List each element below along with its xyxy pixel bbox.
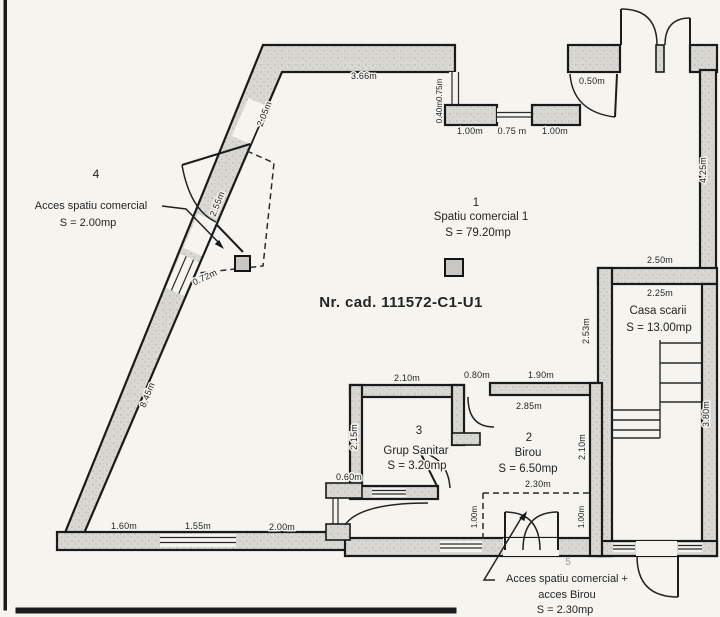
dim-stair-left: 2.53m [581, 318, 591, 344]
room3-name: Grup Sanitar [383, 445, 448, 457]
dim-right-wall: 4.25m [698, 157, 708, 183]
gs-wall-jog [452, 433, 480, 445]
dim-top-wall: 3.66m [351, 71, 377, 81]
access4-area: S = 2.00mp [60, 217, 117, 229]
recess-door-leaf [615, 74, 617, 117]
dim-birou-right: 2.10m [577, 434, 587, 460]
stairwell-door-arc [637, 556, 678, 597]
stairwell-door-opening [636, 541, 677, 556]
entrance-left-door-arc [621, 9, 657, 45]
birou-entry-door-arc [468, 397, 494, 427]
stair-treads [612, 340, 702, 438]
window-opening-lobby [440, 541, 482, 552]
stairwell-window-slot [613, 543, 635, 552]
cadastral-number: Nr. cad. 111572-C1-U1 [319, 294, 483, 311]
dim-recess-jog: 0.40m0.75m [435, 78, 444, 123]
gs-window-slot [372, 488, 406, 497]
wall-entry-pier [568, 45, 620, 72]
room1-number: 1 [473, 197, 479, 209]
window-opening-bottom [160, 534, 236, 547]
page-border-left [4, 0, 7, 610]
lobby-wall-stub [326, 524, 350, 540]
birou-wall-top [490, 383, 600, 395]
stairwell-window-slot [678, 543, 702, 552]
dim-gs-left: 2.15m [349, 424, 359, 450]
interior-partitions [326, 383, 602, 556]
wall-top-right [690, 45, 717, 72]
dim-bottom-seg2: 1.55m [185, 521, 211, 531]
access4-text: Acces spatiu comercial [35, 200, 148, 212]
stairwell [598, 268, 717, 597]
dim-recess-window: 0.75 m [498, 126, 527, 136]
access4-arrowhead [215, 240, 224, 249]
dim-birou-inner: 2.85m [516, 401, 542, 411]
stairwell-wall-top [598, 268, 717, 284]
dim-bottom-seg3: 2.00m [269, 522, 295, 532]
stairwell-area: S = 13.00mp [626, 322, 692, 334]
dim-entry-pier: 0.50m [579, 76, 605, 86]
access5-text-line2: acces Birou [538, 589, 595, 601]
recess-window-gap [497, 108, 532, 122]
dim-birou-door: 0.80m [464, 370, 490, 380]
stairwell-name: Casa scarii [630, 305, 687, 317]
dim-access5-left: 1.00m [470, 506, 479, 529]
lobby-door-arc [345, 503, 428, 525]
gs-wall-top [350, 385, 464, 397]
access5-text-line1: Acces spatiu comercial + [506, 573, 628, 585]
dim-recess-pier2: 1.00m [542, 126, 568, 136]
slant-door-b-leaf [216, 224, 243, 252]
dim-bottom-seg1: 1.60m [111, 521, 137, 531]
room3-area: S = 3.20mp [387, 460, 446, 472]
floor-plan-scan: 3.66m 2.05m 0.40m0.75m 1.00m 0.75 m 1.00… [0, 0, 720, 617]
room1-name: Spatiu comercial 1 [434, 211, 529, 223]
access5-door-opening [503, 538, 559, 556]
recess-pier-1 [445, 105, 497, 125]
room1-area: S = 79.20mp [445, 227, 511, 239]
dim-stair-right: 3.80m [701, 401, 711, 427]
room2-area: S = 6.50mp [498, 463, 557, 475]
dim-stair-top-inner: 2.25m [647, 288, 673, 298]
recess-jog-window [449, 72, 462, 105]
birou-wall-right [590, 383, 602, 556]
dim-access5-width: 2.30m [525, 479, 551, 489]
entrance-center-post [656, 45, 664, 72]
recess-pier-2 [532, 105, 580, 125]
dim-gs-top: 2.10m [394, 373, 420, 383]
dim-access5-right: 1.00m [577, 506, 586, 529]
room-labels: 1 Spatiu comercial 1 S = 79.20mp Nr. cad… [319, 197, 692, 475]
dim-stair-top-outer: 2.50m [647, 255, 673, 265]
step-wall [326, 483, 362, 498]
access4-number: 4 [93, 167, 100, 181]
main-entrance-doors [621, 9, 690, 72]
room2-number: 2 [526, 432, 532, 444]
dim-birou-top: 1.90m [528, 370, 554, 380]
access5-area: S = 2.30mp [537, 604, 594, 616]
page-border-bottom [16, 608, 456, 613]
column-marker [235, 256, 250, 271]
dim-recess-pier1: 1.00m [457, 126, 483, 136]
column-marker [445, 259, 463, 276]
access5-number: 5 [565, 557, 571, 568]
entrance-right-door-arc [665, 18, 690, 45]
room3-number: 3 [416, 425, 422, 437]
floor-plan-drawing: 3.66m 2.05m 0.40m0.75m 1.00m 0.75 m 1.00… [0, 0, 720, 617]
columns [235, 256, 463, 276]
room2-name: Birou [515, 447, 542, 459]
dim-step: 0.60m [336, 472, 362, 482]
